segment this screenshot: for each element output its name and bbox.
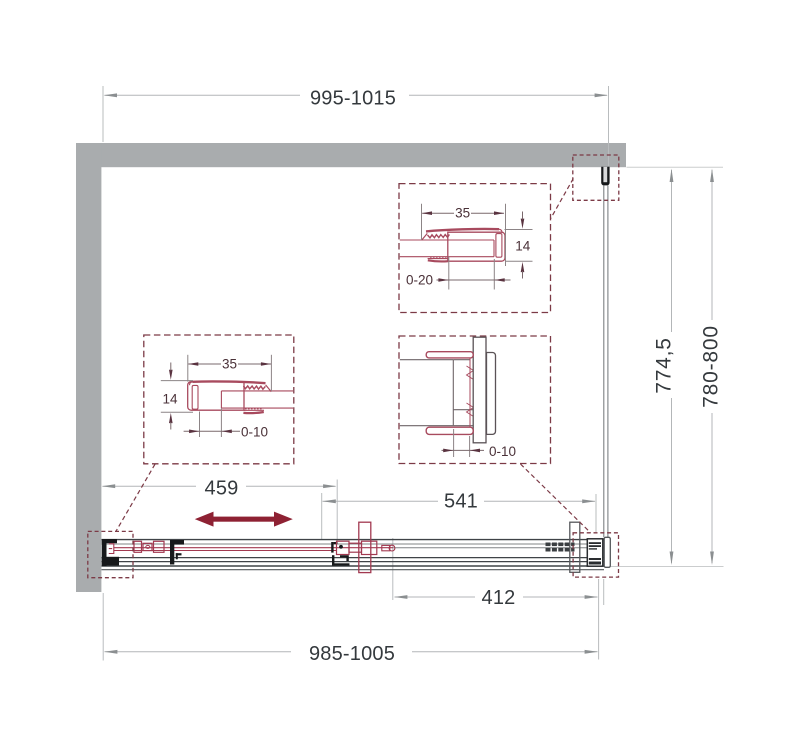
svg-text:35: 35 bbox=[222, 356, 237, 371]
svg-text:0-10: 0-10 bbox=[489, 444, 516, 459]
svg-text:995-1015: 995-1015 bbox=[310, 87, 396, 109]
svg-text:541: 541 bbox=[444, 491, 478, 513]
svg-text:780-800: 780-800 bbox=[700, 325, 723, 408]
svg-text:774,5: 774,5 bbox=[653, 337, 676, 394]
svg-text:0-10: 0-10 bbox=[241, 425, 268, 440]
svg-text:412: 412 bbox=[482, 587, 516, 609]
svg-text:459: 459 bbox=[205, 478, 239, 500]
svg-text:35: 35 bbox=[455, 206, 470, 221]
svg-text:985-1005: 985-1005 bbox=[309, 643, 395, 665]
svg-text:0-20: 0-20 bbox=[406, 273, 433, 288]
svg-text:14: 14 bbox=[515, 238, 531, 253]
svg-text:14: 14 bbox=[162, 392, 178, 407]
